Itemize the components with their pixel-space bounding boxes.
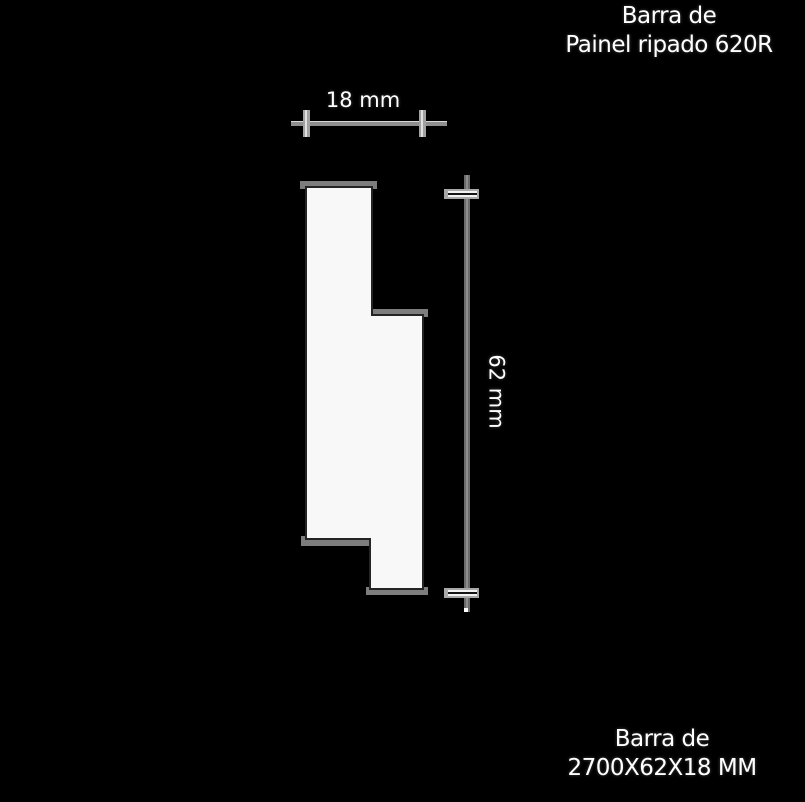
technical-drawing-canvas: Barra de Painel ripado 620R 18 mm 62 mm … [0,0,805,802]
product-title-line1: Barra de [544,2,794,31]
height-dimension-tick-top [444,189,479,199]
product-title: Barra de Painel ripado 620R [544,2,794,60]
product-title-line2: Painel ripado 620R [544,31,794,60]
width-dimension-tick-right [419,110,426,137]
height-dimension-label: 62 mm [484,352,509,432]
height-dimension-tick-bottom [444,588,479,598]
profile-diagram-svg [0,0,805,802]
bar-size-caption-line2: 2700X62X18 MM [537,754,787,783]
bar-size-caption-line1: Barra de [537,725,787,754]
height-dimension-line-end-tip [464,608,468,612]
bar-size-caption: Barra de 2700X62X18 MM [537,725,787,783]
height-dimension-line [444,175,479,612]
profile-cross-section [306,187,423,589]
width-dimension-label: 18 mm [303,88,423,112]
width-dimension-line [291,110,447,137]
width-dimension-tick-left [303,110,310,137]
